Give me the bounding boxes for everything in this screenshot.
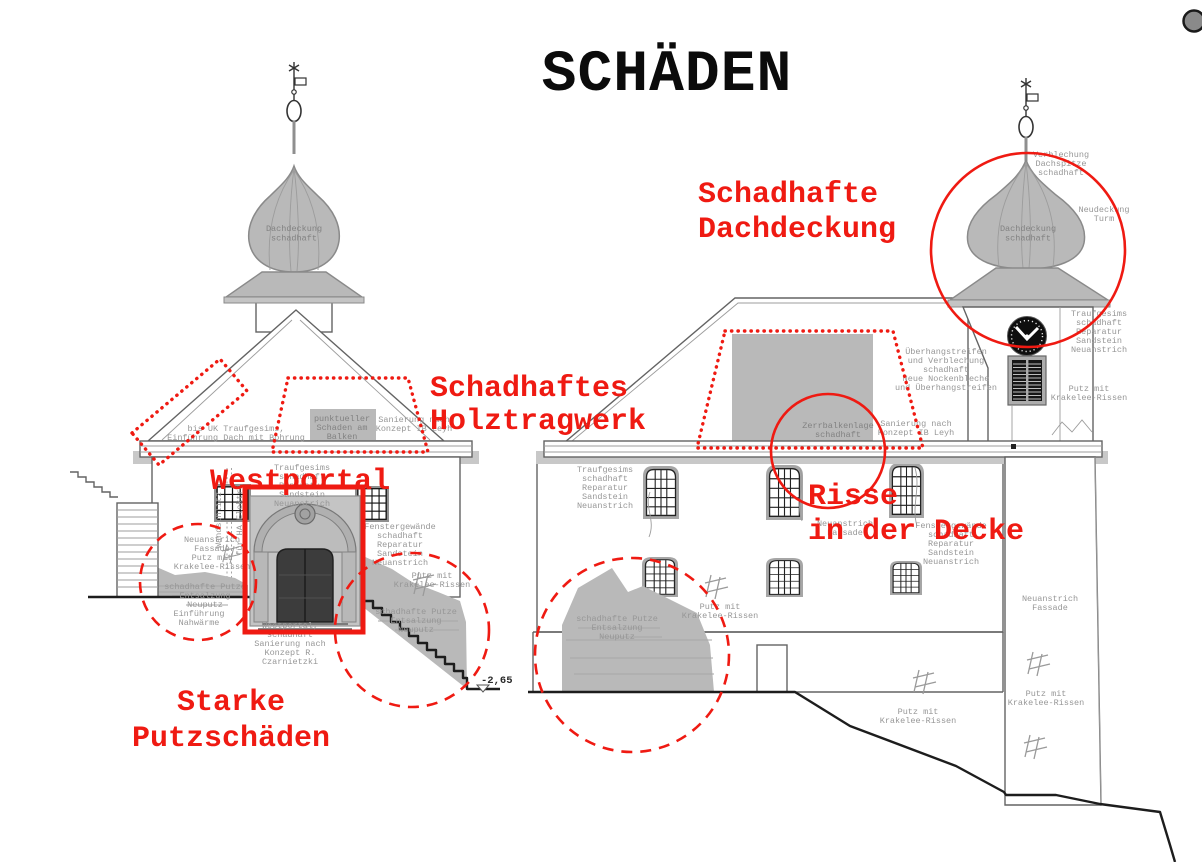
label-einfuehrung-nahwaerme: EinführungNahwärme <box>173 609 224 628</box>
label-westportal-schadhaft: Westportal,schadhaftSanierung nachKonzep… <box>254 621 325 667</box>
label-putz-krakelee-right2: Putz mitKrakelee-Rissen <box>880 707 957 726</box>
annotation-westportal: Westportal <box>210 465 390 499</box>
right-tower-base <box>1005 457 1101 805</box>
window <box>766 558 803 597</box>
annotation-starke-putzschaeden: StarkePutzschäden <box>132 686 330 756</box>
window <box>643 466 679 519</box>
tower-louver-window <box>1008 356 1046 405</box>
right-tower-skirt-roof <box>950 268 1108 300</box>
label-traufgesims-right1: TraufgesimsschadhaftReparaturSandsteinNe… <box>577 465 633 511</box>
label-dome-left: Dachdeckungschadhaft <box>266 224 322 244</box>
westportal-drawing <box>250 496 360 629</box>
level-value: -2,65 <box>481 675 513 687</box>
damage-plan-page: -2,65 <box>0 0 1202 862</box>
corner-button[interactable] <box>1184 11 1202 32</box>
page-title: SCHÄDEN <box>542 43 793 108</box>
crack-symbol <box>913 670 936 694</box>
left-tower <box>224 62 364 332</box>
tower-clock <box>1008 317 1047 356</box>
label-dome-right: Dachdeckungschadhaft <box>1000 224 1056 244</box>
left-upper-stairs <box>70 472 158 597</box>
left-tower-onion-dome <box>249 166 340 272</box>
annotation-schadhafte-dachdeckung: SchadhafteDachdeckung <box>698 178 896 247</box>
window <box>890 561 922 595</box>
elevation-drawing: -2,65 <box>0 0 1202 862</box>
annotation-schadhaftes-holztragwerk: SchadhaftesHolztragwerk <box>430 372 646 439</box>
left-tower-skirt-roof <box>226 272 362 297</box>
door <box>757 645 787 692</box>
left-tower-finial-icon <box>287 62 306 154</box>
window <box>766 465 803 520</box>
